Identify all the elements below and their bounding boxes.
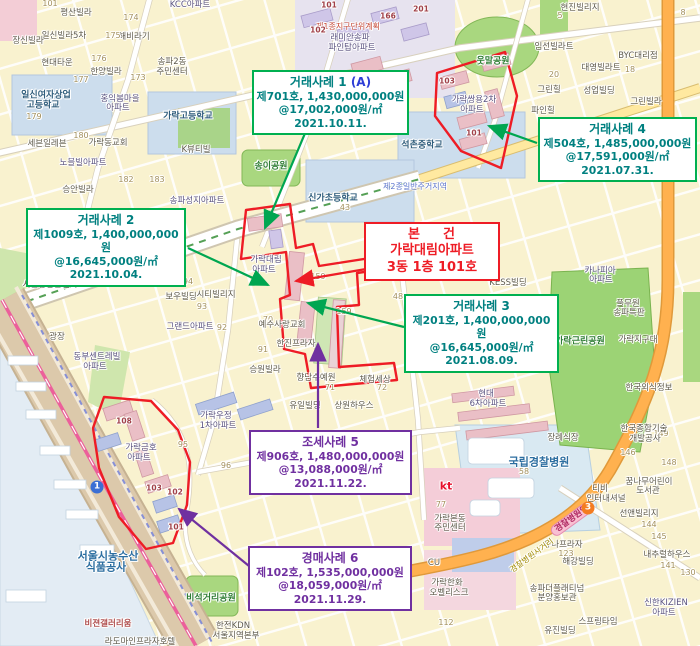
case1-title-text: 거래사례 1 <box>290 75 347 89</box>
case3-date: 2021.08.09. <box>408 354 555 367</box>
case5-title: 조세사례 5 <box>253 435 408 450</box>
subject-unit: 3동 1층 101호 <box>368 260 496 276</box>
map-view[interactable]: 101평산빌라174일신빌라5차해비라기175장신빌라현대타운176한양빌라17… <box>0 0 700 646</box>
case3-unit-price: @16,645,000원/㎡ <box>408 341 555 354</box>
case4-price: 제504호, 1,485,000,000원 <box>542 137 693 150</box>
case2-unit-price: @16,645,000원/㎡ <box>30 255 182 268</box>
case2-date: 2021.10.04. <box>30 268 182 281</box>
case6-title: 경매사례 6 <box>252 551 408 566</box>
case5-date: 2021.11.22. <box>253 477 408 490</box>
subject-title: 본 건 <box>368 227 496 243</box>
callout-subject: 본 건 가락대림아파트 3동 1층 101호 <box>364 222 500 281</box>
callout-case-3: 거래사례 3 제201호, 1,400,000,000원 @16,645,000… <box>404 294 559 373</box>
case6-price: 제102호, 1,535,000,000원 <box>252 566 408 579</box>
case3-title: 거래사례 3 <box>408 299 555 314</box>
school-ilsin-girls-hs <box>12 75 112 135</box>
case4-date: 2021.07.31. <box>542 164 693 177</box>
case1-date: 2021.10.11. <box>256 117 405 130</box>
case4-unit-price: @17,591,000원/㎡ <box>542 150 693 163</box>
callout-case-6: 경매사례 6 제102호, 1,535,000,000원 @18,059,000… <box>248 546 412 611</box>
subject-complex-name: 가락대림아파트 <box>368 243 496 259</box>
case1-title: 거래사례 1 (A) <box>256 75 405 90</box>
case4-title: 거래사례 4 <box>542 122 693 137</box>
case1-unit-price: @17,002,000원/㎡ <box>256 103 405 116</box>
case1-price: 제701호, 1,430,000,000원 <box>256 90 405 103</box>
case5-unit-price: @13,088,000원/㎡ <box>253 463 408 476</box>
case6-unit-price: @18,059,000원/㎡ <box>252 579 408 592</box>
case1-suffix: (A) <box>351 75 371 89</box>
case6-date: 2021.11.29. <box>252 593 408 606</box>
case2-price: 제1009호, 1,400,000,000원 <box>30 228 182 255</box>
case5-price: 제906호, 1,480,000,000원 <box>253 450 408 463</box>
callout-case-4: 거래사례 4 제504호, 1,485,000,000원 @17,591,000… <box>538 117 697 182</box>
case2-title: 거래사례 2 <box>30 213 182 228</box>
callout-case-5: 조세사례 5 제906호, 1,480,000,000원 @13,088,000… <box>249 430 412 495</box>
park-east-strip <box>683 292 700 382</box>
callout-case-2: 거래사례 2 제1009호, 1,400,000,000원 @16,645,00… <box>26 208 186 287</box>
callout-case-1: 거래사례 1 (A) 제701호, 1,430,000,000원 @17,002… <box>252 70 409 135</box>
case3-price: 제201호, 1,400,000,000원 <box>408 314 555 341</box>
